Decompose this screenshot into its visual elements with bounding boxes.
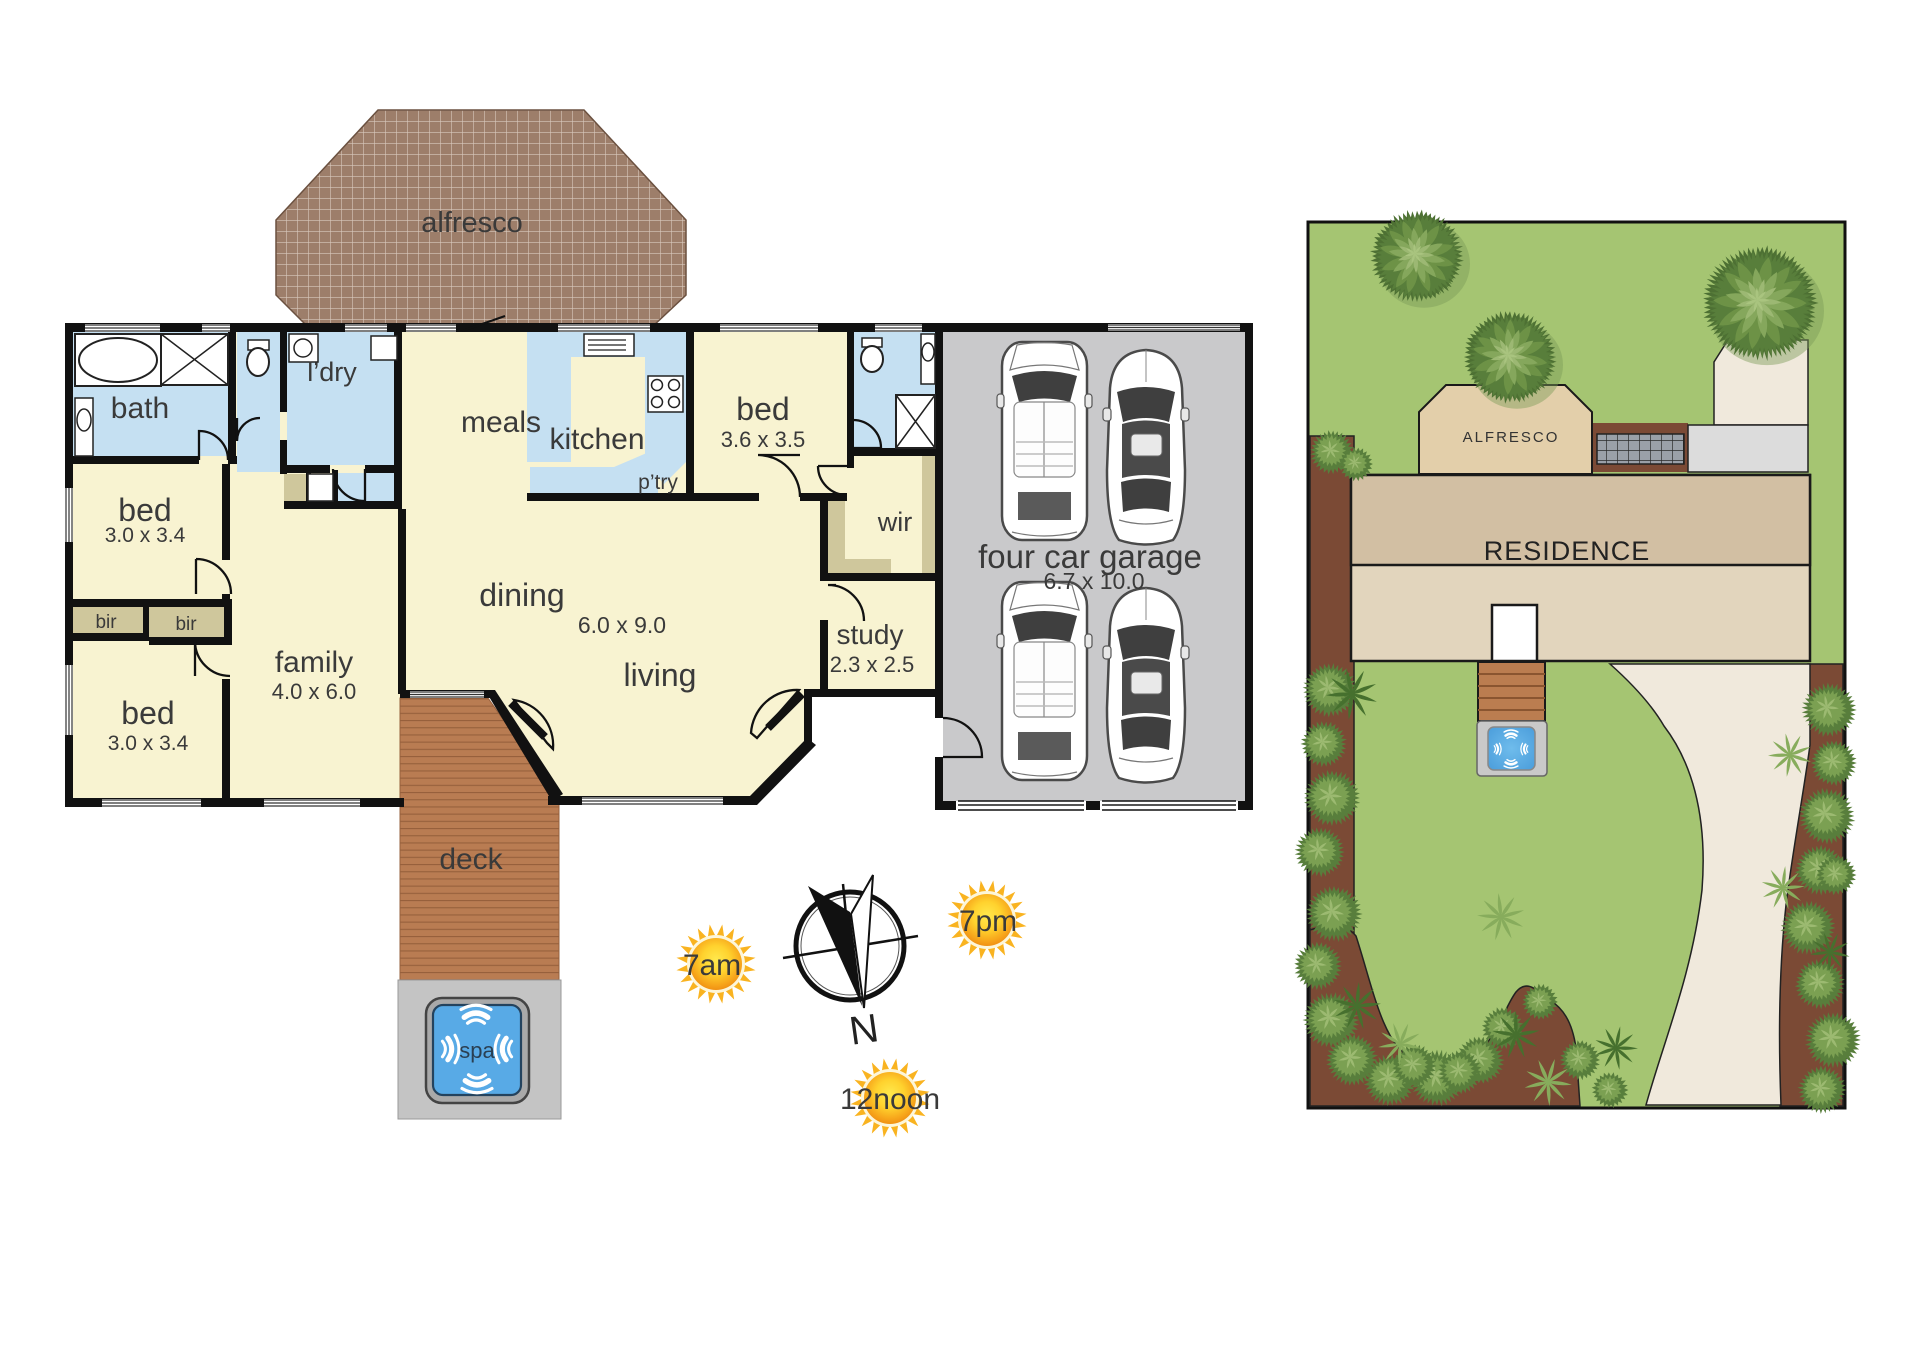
svg-text:deck: deck [439,843,503,876]
svg-text:7pm: 7pm [959,905,1017,938]
svg-text:RESIDENCE: RESIDENCE [1484,536,1651,566]
svg-text:kitchen: kitchen [549,423,644,456]
svg-text:family: family [275,646,353,679]
svg-text:study: study [837,619,904,650]
svg-text:N: N [847,1006,882,1054]
svg-text:alfresco: alfresco [421,207,523,239]
svg-text:bir: bir [175,614,197,635]
svg-text:spa: spa [459,1038,495,1063]
svg-text:6.7 x 10.0: 6.7 x 10.0 [1043,568,1144,594]
svg-text:living: living [624,657,697,693]
svg-text:l’dry: l’dry [307,357,357,387]
svg-text:wir: wir [877,507,913,537]
svg-text:bir: bir [95,612,117,633]
svg-text:7am: 7am [683,949,741,982]
svg-text:dining: dining [479,577,564,613]
svg-text:3.0 x 3.4: 3.0 x 3.4 [108,732,189,755]
svg-text:2.3 x 2.5: 2.3 x 2.5 [830,652,914,677]
svg-text:ALFRESCO: ALFRESCO [1463,429,1560,446]
svg-text:12noon: 12noon [840,1083,940,1116]
svg-text:bed: bed [736,391,789,427]
svg-text:meals: meals [461,406,541,439]
svg-text:bed: bed [118,492,171,528]
svg-text:bath: bath [111,392,169,425]
svg-text:bed: bed [121,695,174,731]
svg-text:6.0 x 9.0: 6.0 x 9.0 [578,612,666,638]
svg-text:3.6 x 3.5: 3.6 x 3.5 [721,427,805,452]
svg-text:p’try: p’try [638,471,678,494]
svg-text:4.0 x 6.0: 4.0 x 6.0 [272,679,356,704]
svg-text:3.0 x 3.4: 3.0 x 3.4 [105,524,186,547]
